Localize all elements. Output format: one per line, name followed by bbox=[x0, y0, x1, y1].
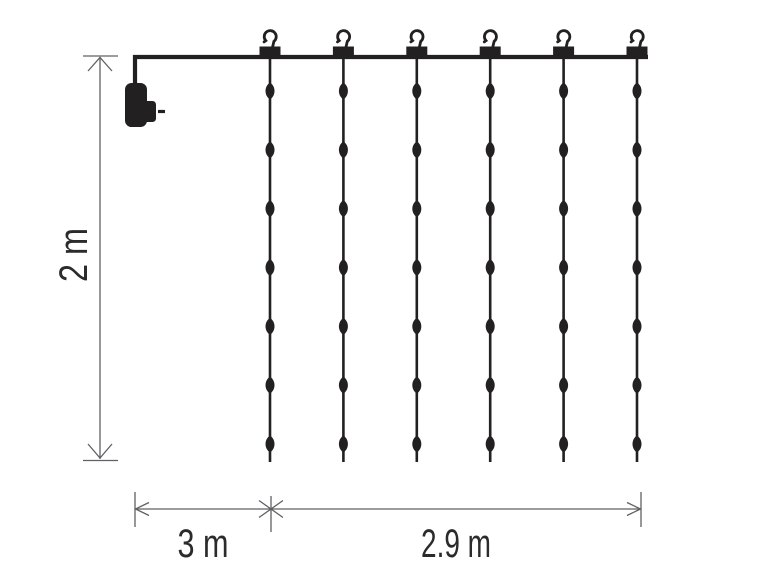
led-bulb bbox=[266, 435, 275, 452]
power-plug bbox=[125, 83, 165, 127]
hanging-hook-icon bbox=[264, 31, 276, 47]
led-bulb bbox=[486, 318, 495, 335]
hook-clip bbox=[480, 47, 501, 60]
curtain-strand bbox=[480, 31, 501, 462]
led-bulb bbox=[633, 200, 642, 217]
dimensions: 2 m 3 m 2.9 m bbox=[52, 56, 641, 566]
lead-dimension-label: 3 m bbox=[178, 522, 229, 566]
led-bulb bbox=[559, 200, 568, 217]
led-bulb bbox=[633, 377, 642, 394]
led-bulb bbox=[412, 318, 421, 335]
led-bulb bbox=[266, 318, 275, 335]
height-dimension-label: 2 m bbox=[52, 228, 96, 282]
top-wire bbox=[135, 57, 648, 87]
hook-clip bbox=[627, 47, 648, 60]
led-bulb bbox=[339, 83, 348, 100]
led-bulb bbox=[412, 259, 421, 276]
hanging-hook-icon bbox=[338, 31, 350, 47]
led-bulb bbox=[412, 377, 421, 394]
led-bulb bbox=[339, 141, 348, 158]
curtain-strand bbox=[260, 31, 281, 462]
led-bulb bbox=[486, 259, 495, 276]
led-bulb bbox=[266, 83, 275, 100]
hanging-hook-icon bbox=[558, 31, 570, 47]
led-bulb bbox=[412, 435, 421, 452]
curtain-strand bbox=[627, 31, 648, 462]
led-bulb bbox=[633, 435, 642, 452]
led-bulb bbox=[412, 83, 421, 100]
led-bulb bbox=[412, 200, 421, 217]
led-bulb bbox=[266, 377, 275, 394]
hanging-hook-icon bbox=[484, 31, 496, 47]
curtain-strand bbox=[333, 31, 354, 462]
hook-clip bbox=[553, 47, 574, 60]
led-bulb bbox=[266, 259, 275, 276]
curtain-strand bbox=[553, 31, 574, 462]
led-bulb bbox=[486, 435, 495, 452]
bottom-dimensions: 3 m 2.9 m bbox=[135, 492, 641, 566]
hanging-hook-icon bbox=[631, 31, 643, 47]
led-bulb bbox=[339, 259, 348, 276]
led-bulb bbox=[266, 141, 275, 158]
led-bulb bbox=[559, 435, 568, 452]
led-bulb bbox=[266, 200, 275, 217]
led-bulb bbox=[559, 377, 568, 394]
led-bulb bbox=[633, 83, 642, 100]
led-bulb bbox=[339, 318, 348, 335]
led-bulb bbox=[339, 200, 348, 217]
width-dimension-label: 2.9 m bbox=[421, 522, 491, 566]
led-bulb bbox=[559, 83, 568, 100]
curtain-strands bbox=[260, 31, 648, 462]
led-bulb bbox=[486, 377, 495, 394]
height-dimension: 2 m bbox=[52, 56, 118, 461]
led-bulb bbox=[486, 83, 495, 100]
led-bulb bbox=[633, 141, 642, 158]
hook-clip bbox=[260, 47, 281, 60]
curtain-drawing bbox=[125, 31, 648, 462]
diagram-canvas: 2 m 3 m 2.9 m bbox=[0, 0, 757, 572]
led-bulb bbox=[412, 141, 421, 158]
light-curtain-diagram: 2 m 3 m 2.9 m bbox=[0, 0, 757, 572]
hanging-hook-icon bbox=[411, 31, 423, 47]
led-bulb bbox=[339, 435, 348, 452]
hook-clip bbox=[333, 47, 354, 60]
hook-clip bbox=[406, 47, 427, 60]
led-bulb bbox=[559, 259, 568, 276]
led-bulb bbox=[633, 259, 642, 276]
plug-body bbox=[125, 83, 147, 127]
led-bulb bbox=[559, 318, 568, 335]
led-bulb bbox=[559, 141, 568, 158]
led-bulb bbox=[486, 141, 495, 158]
curtain-strand bbox=[406, 31, 427, 462]
led-bulb bbox=[486, 200, 495, 217]
led-bulb bbox=[339, 377, 348, 394]
led-bulb bbox=[633, 318, 642, 335]
